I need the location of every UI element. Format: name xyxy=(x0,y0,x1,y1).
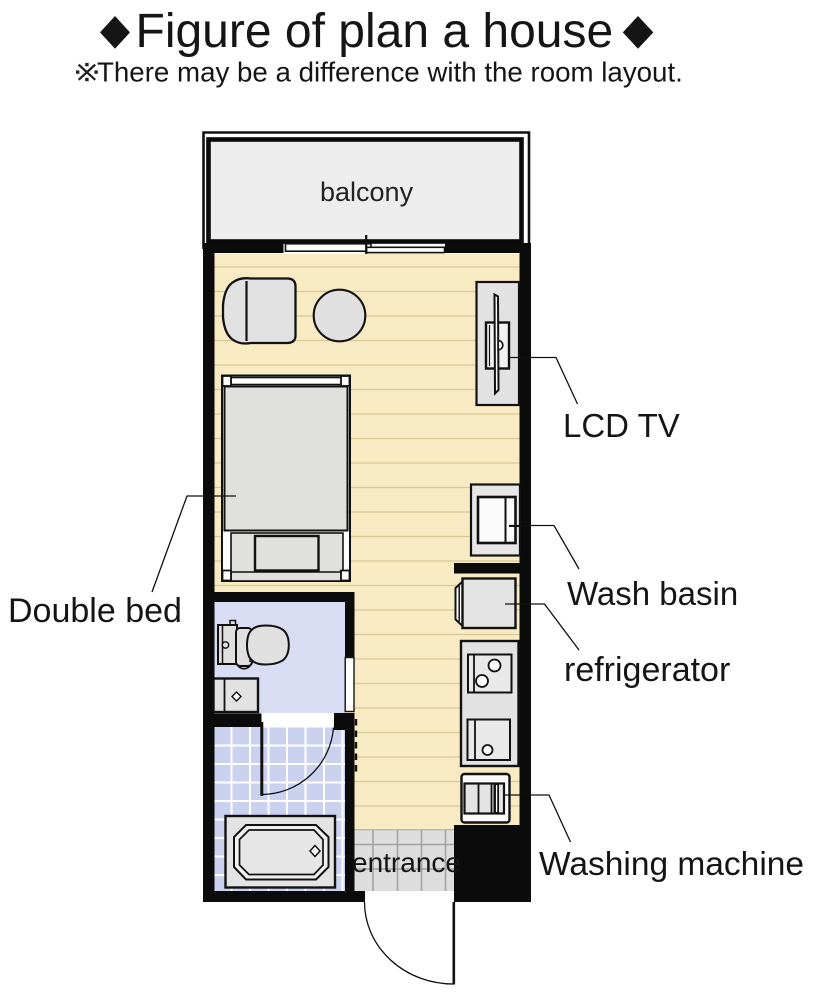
svg-text:Figure of plan a house: Figure of plan a house xyxy=(136,5,614,58)
svg-text:LCD TV: LCD TV xyxy=(563,407,680,444)
svg-text:Wash basin: Wash basin xyxy=(567,575,738,612)
svg-text:Washing machine: Washing machine xyxy=(539,846,804,883)
svg-text:refrigerator: refrigerator xyxy=(564,651,730,689)
svg-text:balcony: balcony xyxy=(320,177,414,207)
svg-text:Double bed: Double bed xyxy=(8,592,182,630)
svg-text:There may be a difference with: There may be a difference with the room … xyxy=(97,57,683,88)
svg-text:entrance: entrance xyxy=(352,847,461,878)
